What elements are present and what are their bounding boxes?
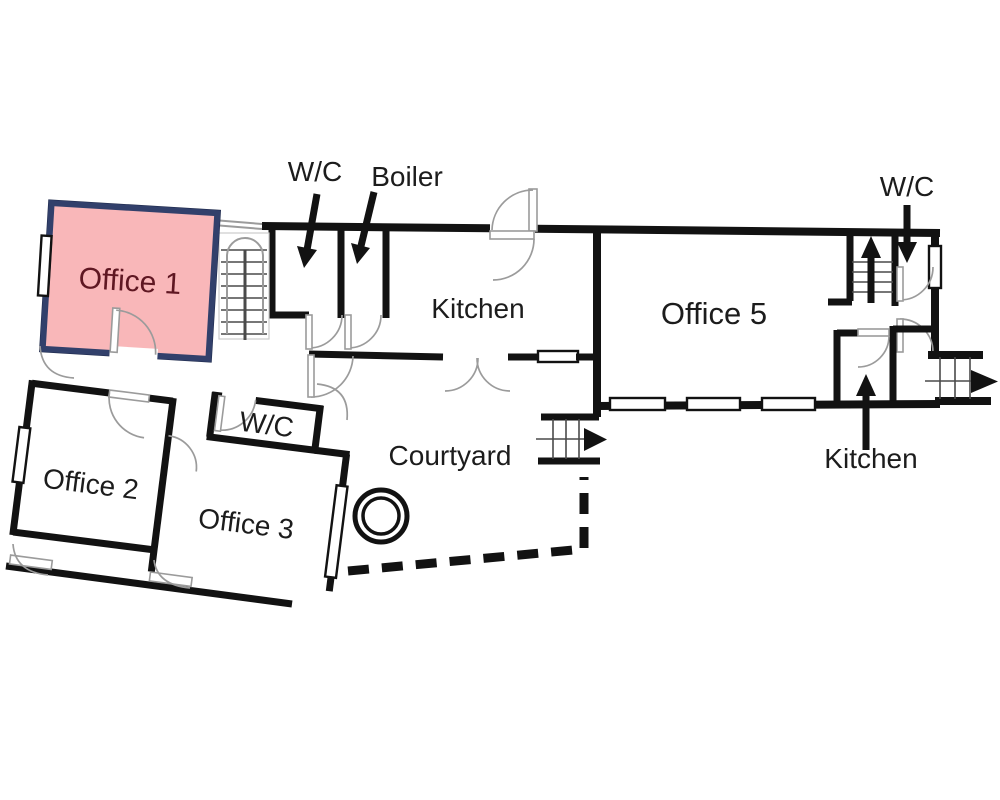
boiler-label: Boiler (371, 161, 443, 192)
courtyard-stairs (536, 417, 607, 461)
room-office-3: Office 3 (152, 432, 352, 592)
kitchen-north-door (490, 189, 537, 280)
south-exterior-wall (6, 544, 292, 604)
window (538, 351, 578, 362)
window (38, 236, 52, 296)
exterior-top-wall (213, 220, 940, 233)
arrow-courtyard-head (584, 428, 607, 451)
kitchen-main-label: Kitchen (431, 293, 524, 324)
exit-stairs-right (925, 355, 998, 401)
door-leaf (345, 315, 351, 349)
arrow-wc-left (307, 194, 317, 250)
door-arc (492, 190, 533, 230)
window (610, 398, 665, 410)
railing-line (213, 225, 262, 229)
room-office-2: Office 2 (3, 379, 173, 571)
window (929, 246, 941, 288)
arrow-wc-left-head (297, 246, 317, 268)
floorplan-page: Office 1 Office 2 W/C (0, 0, 1000, 800)
arrow-kitchen-right-head (856, 374, 876, 396)
double-door-arc (477, 358, 510, 391)
door-leaf (308, 355, 314, 397)
door-leaf (490, 231, 534, 239)
door-leaf (897, 319, 903, 352)
kitchen-right-label: Kitchen (824, 443, 917, 474)
arrow-boiler (361, 192, 374, 246)
window (687, 398, 740, 410)
door-arc (900, 319, 933, 352)
window (325, 485, 347, 578)
kitchen-south-wall (308, 351, 600, 397)
courtyard-label: Courtyard (389, 440, 512, 471)
window (762, 398, 815, 410)
door-leaf (306, 315, 312, 349)
door-arc (858, 336, 889, 367)
door-arc (348, 315, 381, 348)
staircase-main (219, 233, 269, 340)
door-arc (311, 356, 353, 397)
lower-left-cluster: Office 2 W/C Office 3 (3, 368, 357, 594)
double-door-arc (445, 358, 478, 391)
room-wc-inner: W/C (207, 392, 324, 451)
arrow-stairs-up-head (861, 236, 881, 258)
wc-upper-left-label: W/C (288, 156, 342, 187)
right-cluster (828, 229, 998, 450)
arrow-wc-right-head (897, 242, 917, 263)
door-leaf (109, 390, 150, 402)
office-2-label: Office 2 (41, 463, 140, 506)
door-arc (309, 315, 342, 348)
arrow-exit-right-head (971, 370, 998, 393)
arrow-boiler-head (351, 243, 370, 264)
wc-inner-label: W/C (238, 406, 296, 444)
door-leaf (529, 189, 537, 231)
room-office-1: Office 1 (34, 201, 219, 363)
office5-walls (597, 226, 940, 417)
door-leaf (897, 267, 903, 301)
wc-boiler-partitions (269, 224, 386, 349)
door-leaf (858, 329, 889, 336)
office-3-label: Office 3 (197, 502, 296, 545)
wc-upper-right-label: W/C (880, 171, 934, 202)
floorplan-svg: Office 1 Office 2 W/C (0, 0, 1000, 800)
well (355, 490, 407, 542)
door-arc (493, 239, 534, 280)
office-1-label: Office 1 (78, 262, 183, 301)
office-5-label: Office 5 (661, 296, 767, 331)
window (13, 427, 31, 483)
